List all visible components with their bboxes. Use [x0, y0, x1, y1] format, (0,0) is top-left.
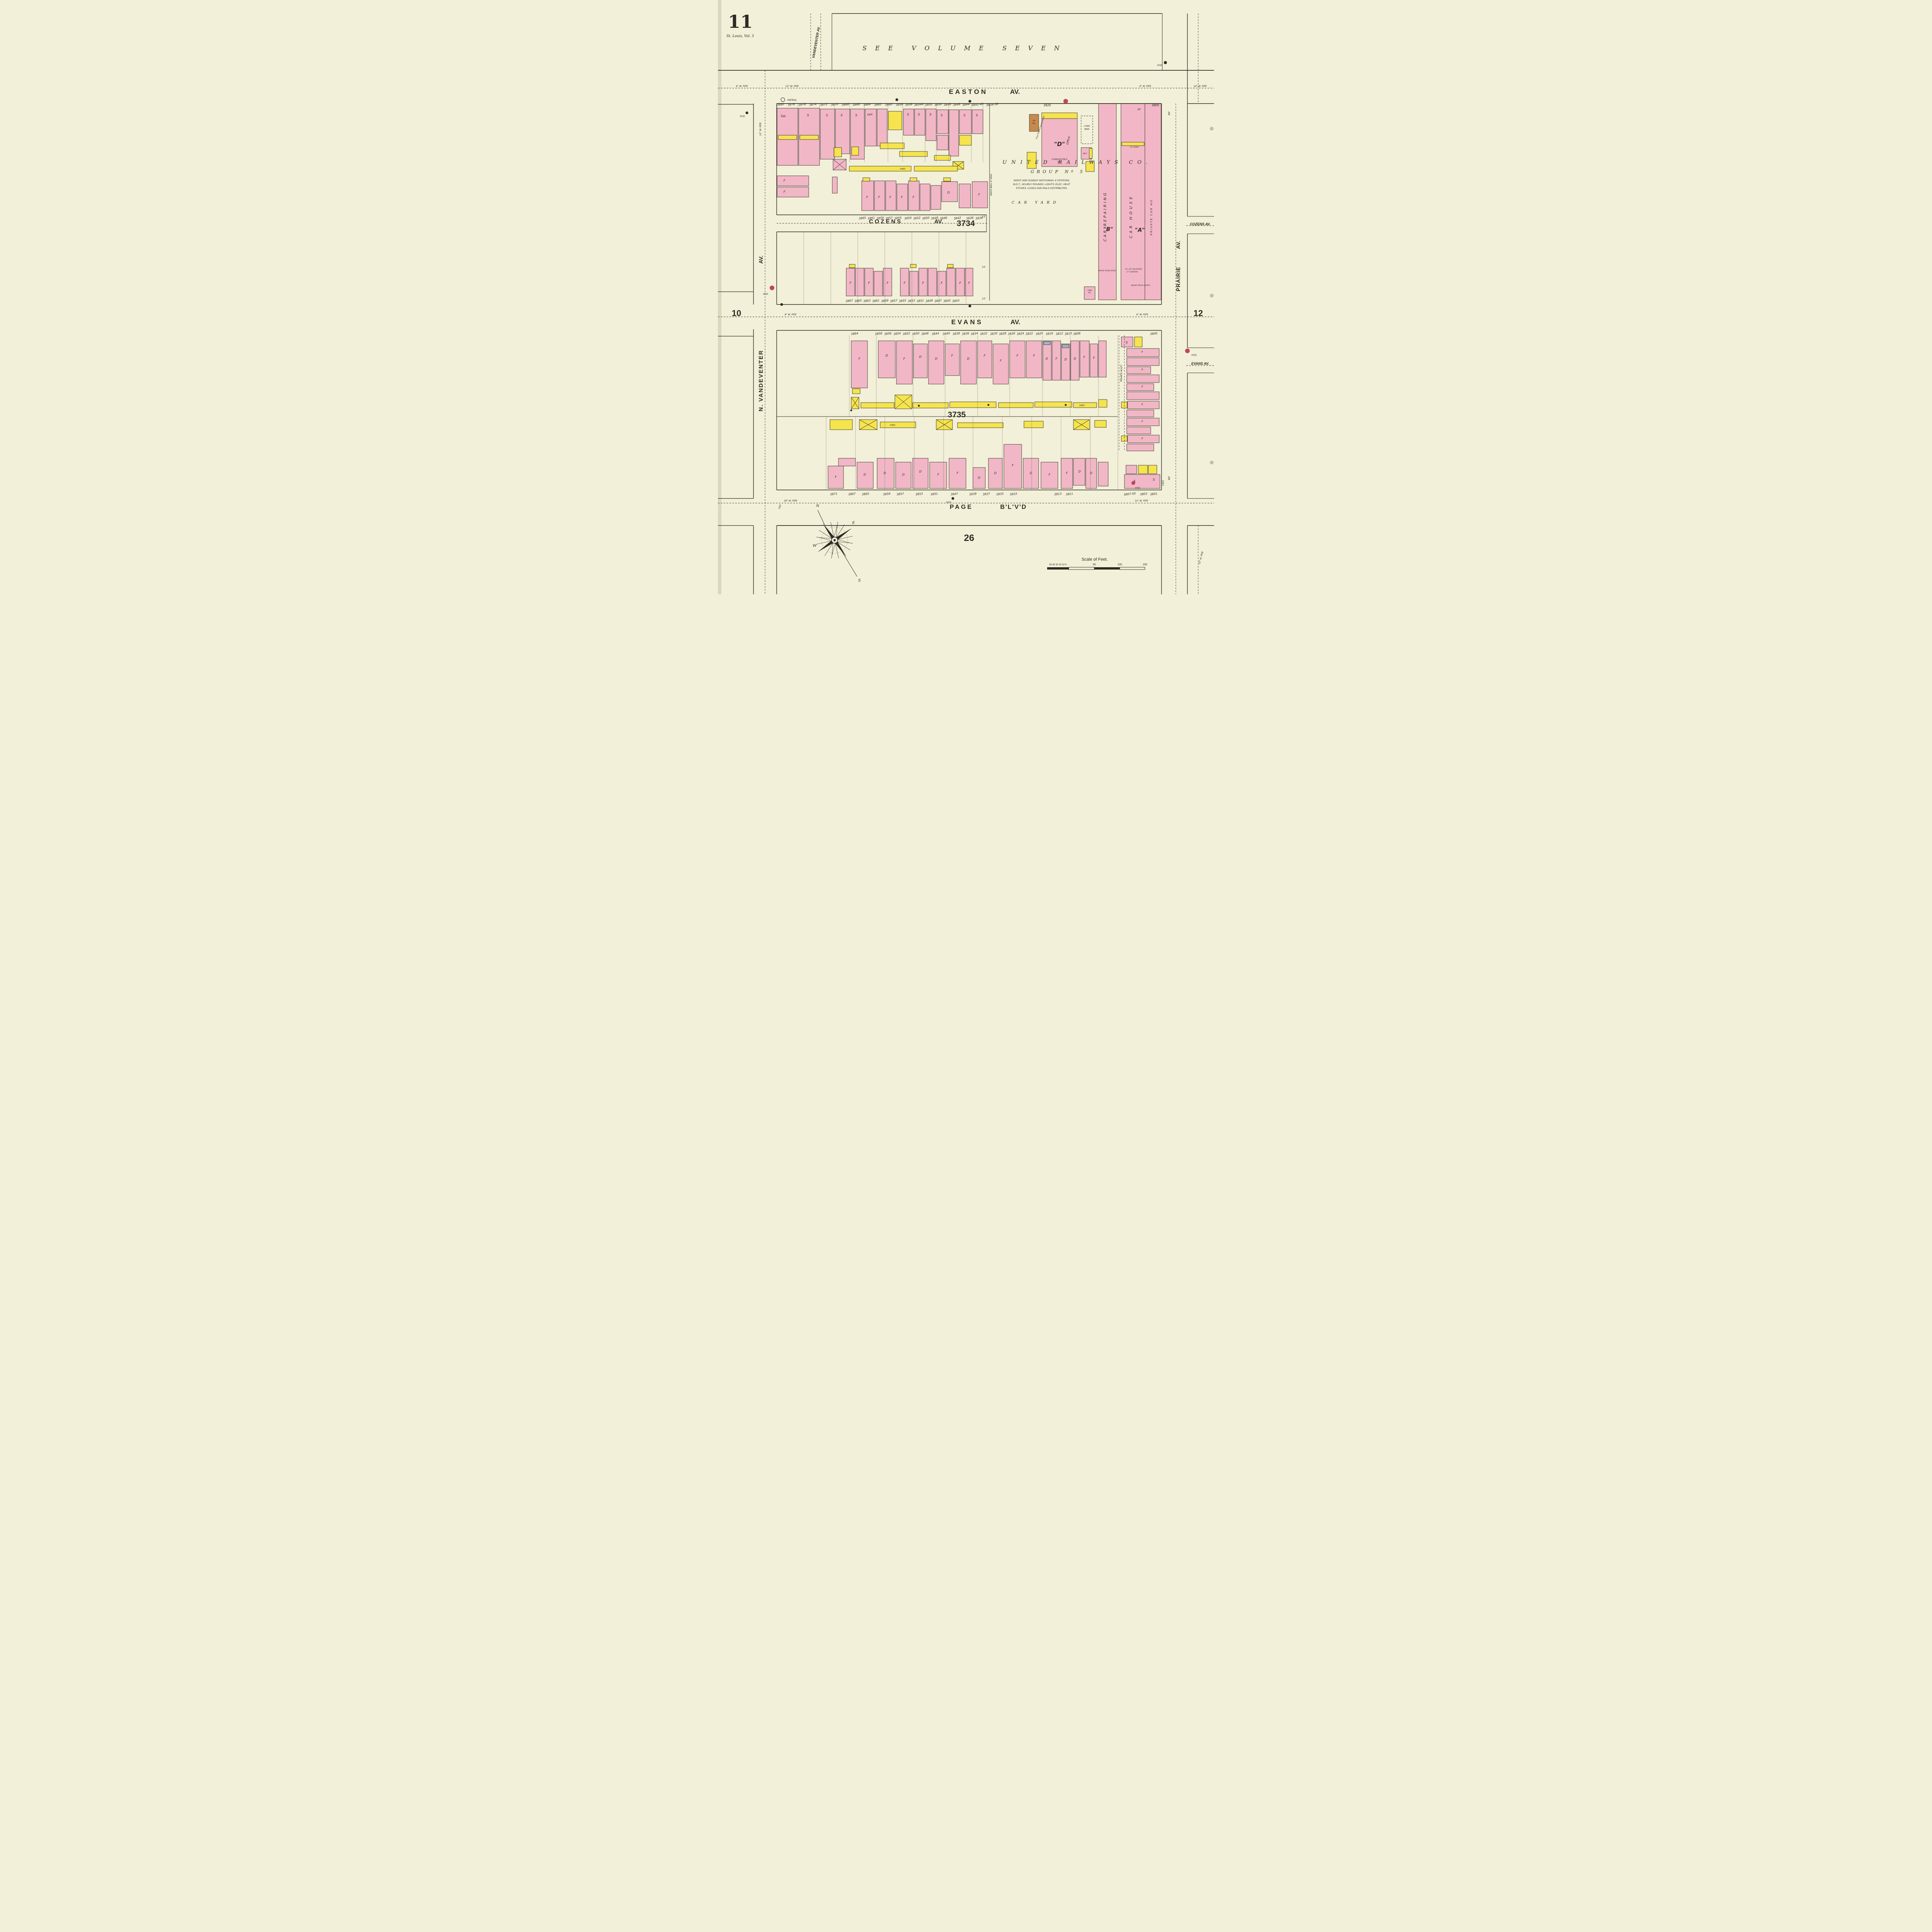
building-footprint	[1042, 113, 1077, 119]
building-footprint	[1099, 341, 1106, 377]
map-label: D	[919, 470, 922, 473]
building-footprint	[874, 271, 883, 296]
map-label: D	[886, 354, 888, 357]
map-label: 12" W. PIPE	[786, 85, 799, 88]
map-label: F	[784, 190, 786, 194]
building-footprint	[934, 155, 951, 160]
car-yard-label: CAR YARD	[1012, 201, 1059, 205]
adjacent-sheet-left: 10	[732, 308, 741, 318]
street-prairie: PRAIRIE	[1175, 267, 1181, 291]
building-footprint	[1127, 367, 1151, 374]
map-label: S	[855, 114, 857, 117]
street-page-blvd: B'L'V'D	[1000, 504, 1027, 510]
building-footprint	[1127, 384, 1154, 391]
map-label: Ho.	[1032, 122, 1036, 125]
map-label: F	[941, 281, 943, 285]
map-label: HYD.	[1192, 354, 1197, 357]
map-label: F	[878, 196, 880, 199]
building-footprint	[1121, 436, 1127, 441]
map-label: D	[1046, 357, 1048, 361]
building-footprint	[1121, 402, 1127, 408]
map-label: BINS	[1084, 128, 1090, 131]
railways-note-3: STOVES, CASKS AND PAILS DISTRIBUTED.	[1016, 187, 1068, 190]
building-footprint	[1010, 341, 1025, 378]
map-label: S	[1153, 478, 1155, 481]
map-label: SHED	[1079, 405, 1085, 407]
map-label: 3800	[1151, 104, 1159, 107]
map-label: 3820	[1043, 104, 1051, 107]
map-label: S	[929, 113, 931, 116]
map-label: 6" W. PIPE	[785, 313, 797, 316]
compass-south-label: S	[858, 578, 861, 583]
building-footprint	[900, 151, 927, 156]
map-label: D	[1078, 470, 1081, 473]
railways-title: UNITED RAILWAYS CO.	[1002, 160, 1152, 165]
building-footprint	[928, 268, 937, 296]
compass-west-label: W	[813, 544, 817, 548]
map-label: F	[1083, 355, 1085, 359]
utility-dot	[952, 497, 954, 500]
map-label: S	[940, 114, 942, 117]
building-footprint	[1138, 465, 1148, 474]
map-label: F	[1056, 357, 1058, 361]
map-label: F	[901, 196, 903, 199]
building-footprint	[852, 147, 859, 155]
building-footprint	[851, 341, 867, 388]
building-footprint	[913, 458, 928, 488]
building-footprint	[929, 341, 944, 384]
map-label: F	[951, 354, 953, 357]
building-footprint	[852, 389, 860, 394]
building-footprint	[957, 423, 1003, 428]
map-label: 60'	[1168, 111, 1171, 116]
street-evans-av: AV.	[1010, 318, 1020, 326]
map-label: F	[1033, 354, 1035, 357]
map-label: D	[1065, 358, 1067, 361]
building-footprint	[978, 341, 992, 378]
map-label: 33' GABLE	[1130, 146, 1139, 148]
compass-east-label: E	[852, 521, 855, 525]
map-label: HYD.	[740, 115, 746, 118]
building-footprint	[914, 166, 957, 171]
building-footprint	[910, 271, 918, 296]
building-footprint	[910, 178, 917, 181]
map-label: 12" W. PIPE	[759, 122, 762, 136]
building-footprint	[1089, 148, 1092, 158]
scale-left-ticks: 50 40 30 20 10 0	[1049, 564, 1067, 566]
map-label: W.C.	[1083, 153, 1088, 155]
map-label: 8"x 26" PILASTERS	[1125, 268, 1142, 270]
map-label: PATROL	[787, 99, 797, 102]
building-footprint	[777, 176, 809, 186]
building-footprint	[944, 178, 951, 181]
map-label: 20" W. PIPE	[784, 500, 798, 502]
map-label: Sal.	[781, 114, 787, 118]
map-label: HYD.	[763, 293, 769, 296]
building-footprint	[863, 178, 870, 181]
building-footprint	[838, 458, 855, 466]
building-footprint	[1026, 341, 1042, 378]
building-footprint	[910, 264, 916, 268]
book-edge-shadow	[718, 0, 721, 594]
map-label: D	[947, 191, 950, 194]
map-label: COKE	[1084, 125, 1090, 128]
map-label: D	[935, 357, 937, 361]
map-label: F	[1093, 356, 1095, 360]
map-label: "A"	[1135, 227, 1145, 233]
scale-tick-50: 50	[1093, 563, 1096, 566]
map-label: S	[963, 114, 965, 117]
building-footprint	[1148, 465, 1157, 474]
building-footprint	[959, 184, 971, 208]
building-footprint	[1126, 465, 1137, 474]
map-label: F	[903, 357, 905, 361]
building-footprint	[1024, 421, 1043, 428]
see-volume-note: SEE VOLUME SEVEN	[862, 44, 1068, 52]
building-footprint	[877, 109, 887, 146]
map-label: 17' CENTERS	[1126, 271, 1138, 273]
map-label: D	[864, 473, 866, 476]
map-label: F	[978, 193, 980, 196]
map-label: 6" W. PIPE	[736, 85, 748, 88]
map-label: S	[1126, 341, 1128, 344]
building-footprint	[880, 143, 904, 149]
map-label: F	[784, 179, 786, 182]
volume-label: St. Louis, Vol. 5	[726, 34, 754, 38]
building-footprint	[1127, 392, 1159, 400]
map-label: WOOD TRUSS ROOF	[1098, 270, 1116, 272]
building-footprint	[1127, 410, 1154, 417]
building-footprint	[1128, 401, 1159, 409]
scale-title: Scale of Feet.	[1082, 557, 1108, 562]
hydrant-dot	[1185, 349, 1190, 353]
punch-hole	[1210, 461, 1214, 464]
map-label: F	[850, 281, 852, 285]
street-cozens-east: COZENS AV.	[1190, 222, 1210, 226]
map-label: 12" W. PIPE	[1135, 500, 1148, 502]
map-label: PRIVATE CAR HO.	[1150, 197, 1153, 235]
building-footprint	[888, 111, 902, 130]
building-footprint	[1145, 104, 1161, 300]
building-footprint	[878, 341, 895, 378]
building-footprint	[961, 341, 976, 384]
utility-dot	[1164, 61, 1167, 64]
utility-dot	[988, 404, 990, 406]
hydrant-dot	[770, 286, 774, 290]
map-label: S	[1133, 480, 1135, 483]
map-label: F	[1012, 464, 1014, 467]
building-footprint	[832, 177, 837, 193]
street-prairie-av: AV.	[1175, 241, 1181, 249]
building-footprint	[937, 135, 948, 150]
building-footprint	[1127, 375, 1159, 383]
map-label: 15'	[982, 297, 986, 300]
building-footprint	[1052, 341, 1061, 380]
utility-dot	[896, 99, 898, 101]
map-label: F	[868, 281, 870, 285]
sheet-number: 11	[728, 11, 753, 32]
building-footprint	[1127, 427, 1151, 434]
street-page: PAGE	[950, 504, 973, 510]
street-easton-av: AV.	[1010, 88, 1020, 95]
punch-hole	[1210, 127, 1214, 131]
building-footprint	[1061, 344, 1070, 380]
building-footprint	[947, 264, 953, 268]
map-label: CAR HOUSE	[1129, 194, 1133, 238]
scale-bar-segment	[1120, 567, 1145, 570]
map-label: SHED	[900, 168, 905, 170]
map-label: HYD.	[1157, 64, 1163, 67]
utility-dot	[746, 112, 748, 114]
map-label: F	[1049, 473, 1051, 476]
punch-hole	[1210, 294, 1214, 298]
map-label: HYD.	[946, 501, 952, 504]
map-label: D	[884, 471, 886, 475]
building-footprint	[1073, 403, 1097, 408]
building-footprint	[834, 148, 842, 157]
street-vandeventer: N. VANDEVENTER	[758, 350, 764, 411]
compass-north-label: N	[816, 504, 819, 508]
map-label: WOOD TRUSS ROOFS	[1131, 284, 1150, 287]
map-label: HO.	[1088, 292, 1091, 294]
building-footprint	[1134, 337, 1142, 347]
map-label: HYD.	[1135, 487, 1141, 490]
adjacent-sheet-right: 12	[1194, 308, 1203, 318]
building-footprint	[1080, 341, 1089, 377]
building-footprint	[1090, 344, 1098, 377]
map-label: S	[807, 114, 809, 117]
building-footprint	[931, 185, 941, 209]
building-footprint	[800, 135, 818, 139]
map-label: 15'	[982, 265, 986, 269]
map-label: Oil	[1033, 120, 1036, 122]
scale-bar-segment	[1069, 567, 1094, 570]
building-footprint	[1095, 420, 1106, 427]
map-label: D	[978, 476, 980, 480]
building-footprint	[1099, 400, 1107, 407]
map-label: 28'	[1137, 108, 1141, 111]
map-label: D	[1090, 471, 1092, 475]
railways-note-2: M.D.T., HOURLY ROUNDS. LIGHTS: ELEC. HEA…	[1013, 183, 1071, 186]
street-evans: EVANS	[951, 318, 983, 326]
sanborn-map: PATROL38203800OilHo.Fire Proof Construct…	[718, 0, 1214, 594]
map-label: F	[968, 281, 970, 285]
map-label: SHED	[890, 424, 895, 427]
building-footprint	[1127, 358, 1159, 366]
scale-tick-100: 100	[1117, 563, 1122, 566]
building-footprint	[993, 344, 1009, 384]
map-label: 10" W. PIPE	[1194, 85, 1207, 88]
map-label: S	[826, 114, 828, 117]
map-label: D	[994, 471, 997, 475]
map-label: F	[859, 357, 861, 361]
building-footprint	[1044, 342, 1050, 345]
map-label: F	[913, 196, 915, 199]
building-footprint	[855, 268, 864, 296]
block-number-26: 26	[964, 533, 975, 543]
building-footprint	[1043, 341, 1051, 380]
map-label: 1301	[1162, 480, 1165, 486]
block-number-3734: 3734	[957, 219, 975, 228]
scale-tick-150: 150	[1143, 563, 1147, 566]
map-label: OFF.	[867, 113, 873, 116]
hydrant-dot	[1063, 99, 1068, 104]
scale-bar-segment	[1047, 567, 1069, 570]
utility-dot	[918, 405, 920, 407]
map-label: F	[922, 281, 924, 285]
sanborn-sheet: PATROL38203800OilHo.Fire Proof Construct…	[718, 0, 1214, 594]
building-footprint	[778, 135, 797, 139]
map-label: TANK	[1087, 289, 1092, 292]
building-footprint	[945, 344, 959, 376]
map-label: F	[959, 281, 961, 285]
map-label: F	[1000, 359, 1002, 362]
street-cozens: COZENS	[869, 218, 903, 225]
street-evans-east: EVANS AV.	[1191, 362, 1209, 366]
map-label: F	[1066, 471, 1068, 475]
scale-bar	[1047, 567, 1145, 570]
building-footprint	[1122, 142, 1144, 146]
block-number-3735: 3735	[948, 410, 966, 419]
building-footprint	[1071, 341, 1079, 380]
street-easton: EASTON	[949, 88, 988, 95]
building-footprint	[998, 403, 1033, 408]
map-label: D	[967, 357, 969, 361]
building-footprint	[1127, 444, 1154, 451]
scale-bar-segment	[1094, 567, 1120, 570]
map-label: F	[889, 196, 891, 199]
map-label: CAR REPAIRING	[1103, 191, 1107, 241]
map-label: PRIVATE ALLEY	[1120, 364, 1123, 382]
map-label: S	[976, 114, 978, 117]
building-footprint	[777, 187, 809, 197]
map-label: F	[984, 354, 986, 357]
building-footprint	[920, 184, 930, 211]
map-label: D	[902, 473, 905, 476]
map-label: F	[1017, 354, 1019, 357]
building-footprint	[947, 268, 955, 296]
utility-dot	[850, 410, 852, 412]
street-vandeventer-av: AV.	[758, 255, 764, 264]
map-label: S	[918, 113, 920, 116]
map-label: "D"	[1054, 141, 1065, 148]
compass-part	[833, 539, 836, 541]
map-label: 6" W. PIPE	[1139, 85, 1151, 88]
map-label: F	[937, 473, 939, 476]
map-label: D	[919, 355, 922, 359]
building-footprint	[959, 135, 971, 145]
building-footprint	[949, 110, 959, 156]
map-label: F	[957, 471, 959, 475]
map-label: D	[1074, 357, 1076, 361]
map-label: S	[840, 114, 842, 117]
utility-dot	[969, 305, 971, 308]
building-footprint	[913, 344, 927, 378]
railways-note-1: NIGHT AND SUNDAY WATCHMAN. 6 STATIONS,	[1014, 179, 1070, 182]
map-label: F	[904, 281, 906, 285]
building-footprint	[1062, 345, 1069, 348]
utility-dot	[1065, 404, 1067, 406]
map-label: 60'	[1168, 476, 1171, 480]
building-footprint	[861, 403, 894, 408]
building-footprint	[830, 420, 852, 430]
map-label: 6" W. PIPE	[1136, 313, 1148, 316]
map-label: F	[835, 475, 837, 479]
street-cozens-av: AV.	[934, 218, 943, 225]
map-label: F	[887, 281, 889, 285]
utility-dot	[781, 303, 783, 306]
map-label: BRICK WALL 8' HIGH	[990, 174, 993, 196]
building-footprint	[1128, 435, 1159, 443]
building-footprint	[1124, 474, 1160, 488]
railways-group: GROUP Nº 5	[1031, 169, 1085, 174]
building-footprint	[1098, 462, 1108, 486]
map-label: S	[907, 113, 909, 116]
building-footprint	[896, 341, 912, 384]
map-label: D	[1030, 471, 1032, 475]
building-footprint	[880, 422, 916, 428]
map-label: F	[866, 196, 868, 199]
building-footprint	[849, 264, 855, 268]
